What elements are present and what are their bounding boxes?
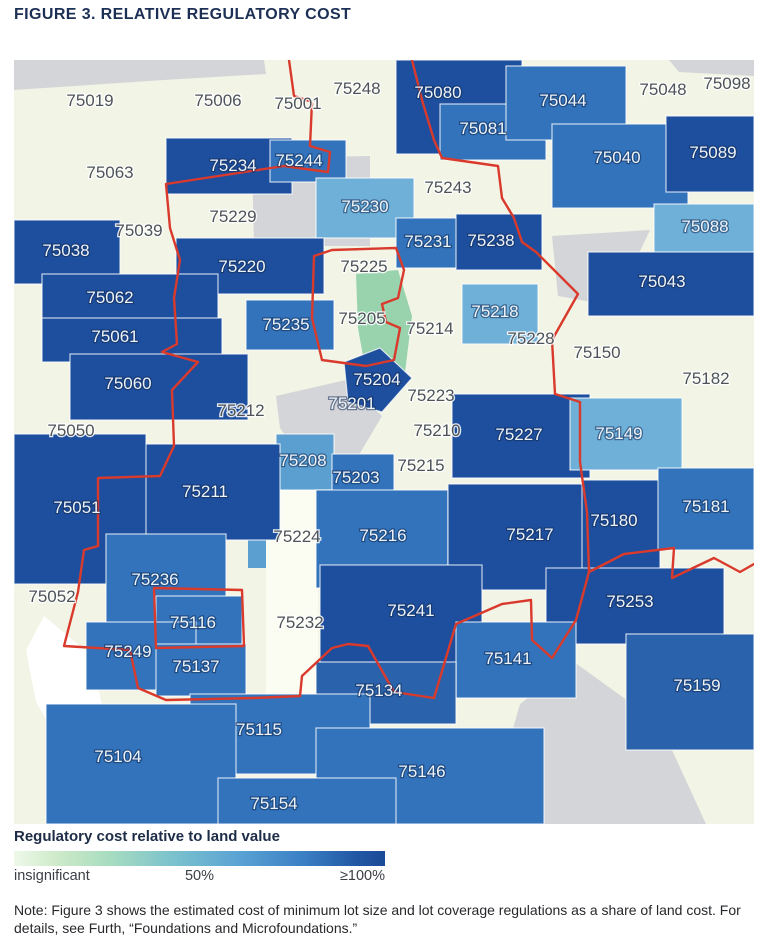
zip-label-75006: 75006 — [194, 91, 241, 110]
legend-label-high: ≥100% — [340, 868, 385, 884]
zip-label-75038: 75038 — [42, 241, 89, 260]
zip-label-75203: 75203 — [332, 468, 379, 487]
zip-label-75212: 75212 — [217, 401, 264, 420]
zip-label-75115: 75115 — [236, 720, 282, 739]
zip-label-75228: 75228 — [507, 329, 554, 348]
zip-label-75154: 75154 — [250, 794, 297, 813]
zip-label-75061: 75061 — [91, 327, 138, 346]
zip-label-75215: 75215 — [397, 456, 444, 475]
zip-label-75249: 75249 — [104, 642, 151, 661]
zip-label-75048: 75048 — [639, 80, 686, 99]
zip-label-75231: 75231 — [404, 232, 451, 251]
zip-label-75201: 75201 — [328, 394, 375, 413]
map-svg: 7508075081750447504075089750887504375234… — [14, 60, 754, 824]
zip-label-75134: 75134 — [355, 681, 402, 700]
zip-label-75210: 75210 — [413, 421, 460, 440]
zip-label-75253: 75253 — [606, 592, 653, 611]
zip-label-75227: 75227 — [495, 425, 542, 444]
zip-label-75141: 75141 — [484, 649, 531, 668]
zip-label-75236: 75236 — [131, 570, 178, 589]
figure-title: FIGURE 3. RELATIVE REGULATORY COST — [14, 6, 351, 24]
zip-label-75204: 75204 — [353, 370, 400, 389]
zip-label-75211: 75211 — [182, 482, 228, 501]
zip-label-75159: 75159 — [673, 676, 720, 695]
zip-label-75051: 75051 — [53, 498, 100, 517]
zip-label-75232: 75232 — [276, 613, 323, 632]
zip-label-75229: 75229 — [209, 207, 256, 226]
zip-label-75146: 75146 — [398, 762, 445, 781]
zip-label-75225: 75225 — [340, 257, 387, 276]
zip-label-75060: 75060 — [104, 374, 151, 393]
zip-label-75216: 75216 — [359, 526, 406, 545]
zip-label-75220: 75220 — [218, 257, 265, 276]
zip-label-75137: 75137 — [172, 657, 219, 676]
zip-label-75039: 75039 — [115, 221, 162, 240]
zip-label-75150: 75150 — [573, 343, 620, 362]
zip-label-75180: 75180 — [590, 511, 637, 530]
zip-label-75182: 75182 — [682, 369, 729, 388]
legend-gradient-bar — [14, 851, 385, 866]
figure-page: FIGURE 3. RELATIVE REGULATORY COST 75080… — [0, 0, 768, 944]
zip-label-75181: 75181 — [682, 497, 729, 516]
zip-label-75230: 75230 — [341, 197, 388, 216]
zip-label-75205: 75205 — [338, 309, 385, 328]
legend-label-mid: 50% — [14, 868, 385, 884]
zip-label-75104: 75104 — [94, 747, 141, 766]
zip-label-75001: 75001 — [274, 94, 321, 113]
zip-label-75218: 75218 — [471, 302, 518, 321]
zip-label-75098: 75098 — [703, 74, 750, 93]
zip-label-75062: 75062 — [86, 288, 133, 307]
figure-note: Note: Figure 3 shows the estimated cost … — [14, 901, 756, 938]
zip-label-75019: 75019 — [66, 91, 113, 110]
zip-label-75089: 75089 — [689, 143, 736, 162]
zip-label-75243: 75243 — [424, 178, 471, 197]
zip-label-75234: 75234 — [209, 156, 256, 175]
zip-label-75235: 75235 — [262, 315, 309, 334]
legend-labels: insignificant 50% ≥100% — [14, 868, 385, 888]
zip-label-75081: 75081 — [459, 119, 506, 138]
zip-label-75088: 75088 — [681, 217, 728, 236]
zip-label-75224: 75224 — [273, 527, 320, 546]
zip-label-75241: 75241 — [387, 601, 434, 620]
zip-label-75248: 75248 — [333, 79, 380, 98]
zip-label-75040: 75040 — [593, 148, 640, 167]
zip-label-75050: 75050 — [47, 421, 94, 440]
zip-label-75217: 75217 — [506, 525, 553, 544]
zip-label-75080: 75080 — [414, 83, 461, 102]
zip-label-75044: 75044 — [539, 91, 586, 110]
zip-label-75149: 75149 — [595, 424, 642, 443]
zip-label-75116: 75116 — [170, 613, 216, 632]
zip-label-75052: 75052 — [28, 587, 75, 606]
zip-label-75238: 75238 — [467, 231, 514, 250]
zip-label-75214: 75214 — [406, 319, 453, 338]
zip-label-75223: 75223 — [407, 386, 454, 405]
legend-title: Regulatory cost relative to land value — [14, 828, 280, 845]
zip-label-75244: 75244 — [275, 151, 322, 170]
zip-region-75154 — [218, 778, 396, 824]
zip-label-75043: 75043 — [638, 272, 685, 291]
zip-label-75208: 75208 — [279, 451, 326, 470]
zip-label-75063: 75063 — [86, 163, 133, 182]
choropleth-map: 7508075081750447504075089750887504375234… — [14, 60, 754, 824]
